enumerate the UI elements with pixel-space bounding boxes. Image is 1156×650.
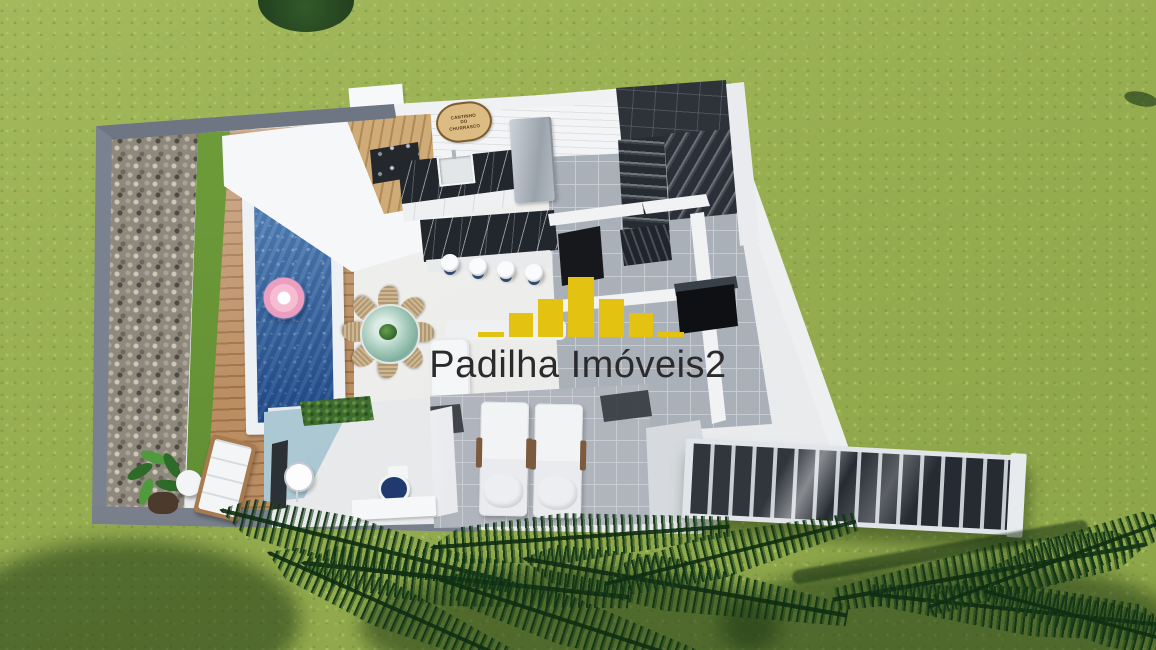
round-mirror	[284, 462, 314, 492]
bar-stool	[497, 261, 515, 279]
bed-post	[476, 438, 483, 468]
bed-pillow	[537, 476, 578, 511]
plant-pot	[148, 492, 178, 514]
kitchen-faucet	[452, 150, 457, 159]
palm-tree-crown	[258, 0, 354, 32]
bar-stool	[469, 258, 487, 276]
tree-shadow-sliver	[1123, 89, 1156, 110]
round-dining-set	[352, 296, 424, 368]
single-bed	[479, 402, 529, 517]
refrigerator	[509, 117, 557, 204]
bed-post	[530, 440, 537, 470]
palm-shadow	[0, 540, 300, 650]
bed-post	[580, 440, 587, 470]
plaque-line-3: CHURRASCO	[449, 123, 480, 132]
plant-centerpiece	[379, 324, 397, 340]
pergola-end-beam	[1006, 453, 1026, 538]
aerial-house-render: CANTINHO DO CHURRASCO	[0, 0, 1156, 650]
single-bed	[533, 404, 583, 519]
bar-stool	[525, 264, 543, 282]
bar-stool	[441, 254, 459, 272]
donut-float	[262, 276, 306, 320]
mirror-stand	[296, 490, 298, 502]
bed-pillow	[483, 474, 524, 509]
sofa-backrest	[446, 320, 566, 340]
